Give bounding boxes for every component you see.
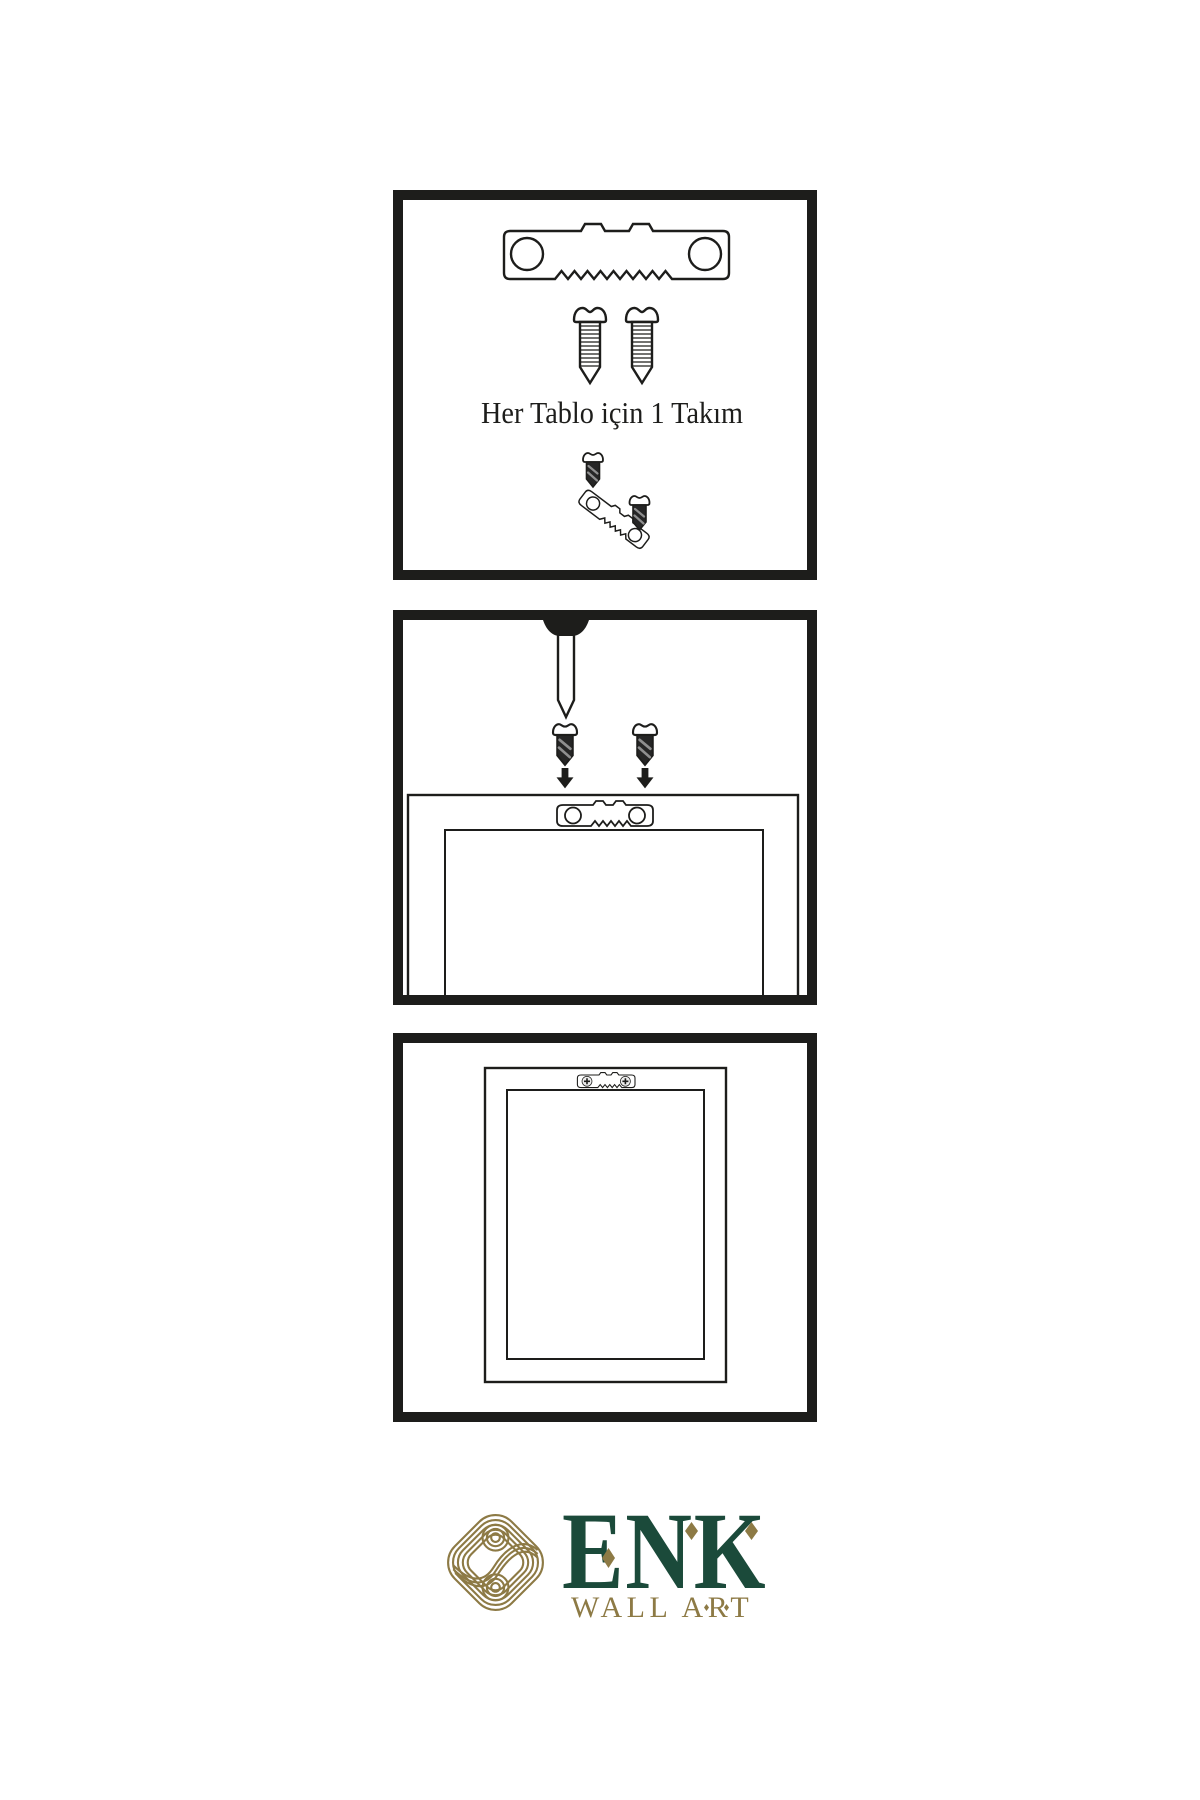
screw-icon [574,308,606,383]
step-3-illustration [403,1043,807,1412]
frame-back-outer-outline [408,795,798,995]
arrow-down-icon [557,768,574,788]
screw-into-hanger-diagram [577,453,652,550]
step-3-panel [393,1033,817,1422]
nail-icon [543,620,589,717]
step-2-panel [393,610,817,1005]
page: Her Tablo için 1 Takım [0,0,1200,1800]
dark-screw-icon [553,724,577,765]
sawtooth-hanger-icon [504,224,729,279]
knot-emblem-icon [438,1498,553,1627]
kit-caption: Her Tablo için 1 Takım [481,395,743,430]
sawtooth-hanger-icon [557,801,653,826]
dark-screw-icon [633,724,657,765]
step-2-illustration [403,620,807,995]
step-1-illustration: Her Tablo için 1 Takım [403,200,807,570]
mounted-hanger [577,1073,635,1088]
frame-inner-outline [507,1090,704,1359]
step-1-panel: Her Tablo için 1 Takım [393,190,817,580]
arrow-down-icon [637,768,654,788]
frame-back-inner-outline [445,830,763,995]
frame-outer-outline [485,1068,726,1382]
dark-screw-icon [583,453,603,487]
screw-icon [626,308,658,383]
brand-wordmark: ENK [562,1496,767,1606]
